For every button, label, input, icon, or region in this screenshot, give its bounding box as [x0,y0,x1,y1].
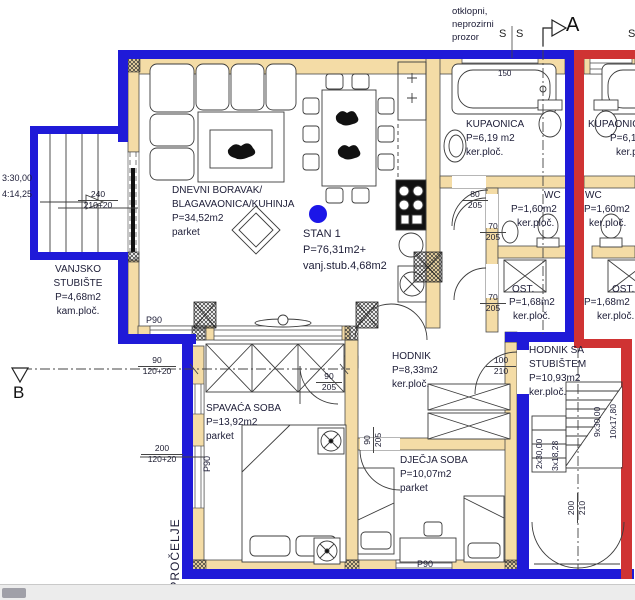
dim-200-210: 200210 [567,493,587,523]
room-label-living: DNEVNI BORAVAK/ BLAGAVAONICA/KUHINJA P=3… [172,184,294,240]
room-label-hall-stair: HODNIK SA STUBIŠTEM P=10,93m2 ker.ploč. [529,344,586,400]
section-marker-a-icon [543,20,566,46]
dim-90-205: 90205 [316,372,342,392]
window-label-p90: P90 [201,450,213,472]
window-symbol-s: S [499,28,506,40]
window-note: otklopni, neprozirni prozor [452,5,494,44]
stair-note-line1: 3:30,00 [2,172,32,184]
section-label-b: B [13,383,24,403]
room-label-bath: KUPAONICA P=6,19 m2 ker.ploč. [466,118,524,160]
room-label-bedroom: SPAVAĆA SOBA P=13,92m2 parket [206,402,281,444]
section-marker-b-icon [12,368,28,382]
section-label-a: A [566,14,579,37]
window-label-p90: P90 [417,558,433,570]
window-symbol-s: S [628,28,635,40]
room-label-kids: DJEČJA SOBA P=10,07m2 parket [400,454,468,496]
room-label-ost: OST. [512,283,534,297]
stair-dim-9x30: 9x30,00 [591,391,603,437]
wardrobes-hall [428,384,510,439]
dim-70-205: 70205 [480,222,506,242]
status-bar [0,584,635,600]
room-label-ost2-floor: ker.ploč. [597,310,634,324]
sofa [150,64,296,180]
room-label-ost-area: P=1,68m2 [509,296,555,310]
stair-dim-2x30: 2x30,00 [533,423,545,469]
room-label-bath2: KUPAONICA P=6,19 m2 ker.ploč. [588,118,635,160]
stair-dim-10x17: 10x17,80 [607,389,619,439]
dim-80-205: 80205 [462,190,488,210]
dim-240: 240210+20 [78,190,118,210]
dining-table-chairs [303,74,394,203]
room-label-wc: WC [544,189,561,203]
position-marker-dot [309,205,327,223]
floor-plan-canvas: otklopni, neprozirni prozor S S S A B DN… [0,0,635,600]
dim-90-205-kids: 90205 [363,427,383,453]
stair-dim-3x18: 3x18,28 [549,425,561,471]
room-label-wc-floor: ker.ploč. [517,217,554,231]
kitchen-appliances [396,62,426,302]
scrollbar-thumb[interactable] [2,588,26,598]
coffee-table-rug [198,112,284,182]
room-label-hall: HODNIK P=8,33m2 ker.ploč. [392,350,438,392]
washbasin [444,130,466,162]
dim-70-205: 70205 [480,293,506,313]
room-label-wc2: WC [585,189,602,203]
entry-door-gap [517,350,529,394]
room-label-ost2-area: P=1,68m2 [584,296,630,310]
apartment-label-stan1: STAN 1 P=76,31m2+ vanj.stub.4,68m2 [303,226,387,274]
room-label-ext-stair: VANJSKO STUBIŠTE P=4,68m2 kam.ploč. [40,263,116,319]
dim-200: 200120+20 [141,444,183,464]
tub-length-label: 150 [498,68,511,80]
ceiling-fan-icon [255,315,311,327]
window-label-p90: P90 [146,314,162,326]
room-label-wc-area: P=1,60m2 [511,203,557,217]
room-label-ost2: OST. [612,283,634,297]
room-label-ost-floor: ker.ploč. [513,310,550,324]
dim-100-210: 100210 [486,356,516,376]
room-label-wc2-floor: ker.ploč. [589,217,626,231]
dim-90: 90120+20 [138,356,176,376]
stair-note-line2: 4:14,25 [2,188,32,200]
window-symbol-s: S [516,28,523,40]
room-label-wc2-area: P=1,60m2 [584,203,630,217]
